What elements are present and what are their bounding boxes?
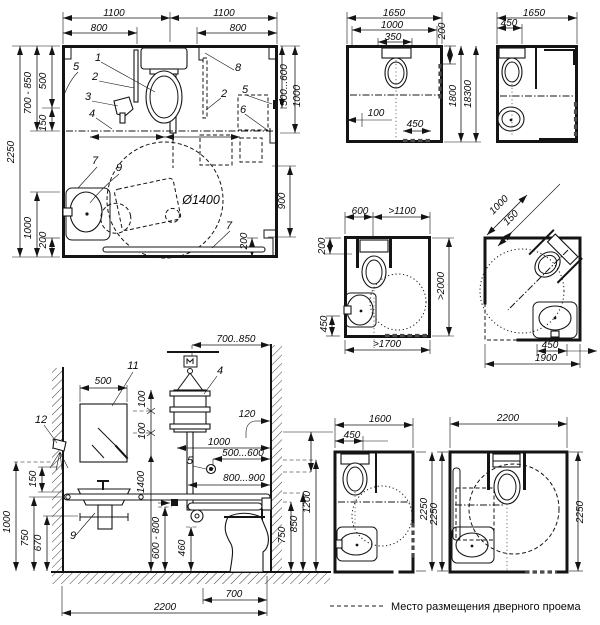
dim-label: 150 [38,114,49,131]
folding-seat-dashed [199,48,268,165]
drawing-sheet: 11001100800800700 - 85050015022501000200… [0,0,600,625]
dim-label: 1400 [136,470,147,493]
dim-label: 1000 [23,216,34,239]
corner-bench [545,50,574,64]
dim-label: 1000 [208,437,231,448]
washbasin-symbol [63,188,110,240]
callout-label: 5 [187,455,194,467]
callout-label: 5 [73,61,80,73]
dim-label: 850 [289,515,300,532]
toilet-plan-symbol [141,48,187,123]
dim-label: 500 [38,72,49,89]
legend-label: Место размещения дверного проема [391,601,581,613]
dim-label: 600 [352,206,369,217]
flush-button [273,100,278,109]
callout-label: 4 [89,108,95,120]
dim-label: 800 [91,23,108,34]
dim-label: 500 [95,376,112,387]
washbasin-symbol [498,107,524,131]
plan-1600: 16004502250 [335,414,432,572]
dim-label: 1800 [448,84,459,107]
labels-layer: 16501000350200180018300100450 [368,8,474,130]
callout-label: 7 [92,155,99,167]
callout-label: 2 [91,71,98,83]
accessible-wc-layouts-drawing: 11001100800800700 - 85050015022501000200… [0,0,600,625]
dim-label: >1700 [373,339,402,350]
callout-label: 4 [217,365,223,377]
callout-label: 6 [240,104,247,116]
dim-label: 500...600 [279,64,290,106]
elevation-view: 700..850500111210010041201000500...60058… [2,334,333,616]
dim-label: 450 [542,340,559,351]
dim-label: 1650 [383,8,406,19]
washbasin-elevation [78,481,130,529]
dim-label: 900 [277,192,288,209]
callout-label: 9 [116,162,122,174]
dim-label: 100 [368,108,385,119]
dim-label: 2250 [575,500,586,524]
dim-label: 700..850 [217,334,256,345]
door-wall-dashed [485,303,518,340]
plan-1650-a: 16501000350200180018300100450 [347,8,481,142]
callout-label: 1 [95,52,101,64]
cistern-symbol [170,356,210,510]
labels-layer: 11001100800800700 - 85050015022501000200… [6,8,303,250]
dim-label: >1100 [388,206,416,217]
dim-label: 1100 [103,8,125,19]
dim-label: 18300 [463,80,474,108]
dim-label: 450 [344,430,361,441]
dim-label: 200 [317,237,328,255]
dim-label: 700 - 850 [23,71,34,114]
callout-label: 3 [85,91,92,103]
plan-corner-wc: 10001504501900 [480,184,597,368]
urinal-symbol [114,97,133,123]
dim-label: 700 [226,589,243,600]
plan-2200: 220022502250 [429,413,586,572]
callout-label: 11 [127,360,138,372]
dim-label: 670 [33,534,44,551]
toilet-plan-symbol [341,454,369,495]
plan-1650-b: 1650450 [497,8,577,142]
toilet-plan-symbol [382,48,411,88]
mirror-symbol [80,404,127,462]
dim-label: 450 [319,315,330,332]
dim-label: 1650 [523,8,546,19]
callout-label: 5 [242,84,249,96]
dim-label: 450 [501,18,518,29]
dim-label: 800...900 [223,473,265,484]
toilet-plan-symbol [499,48,525,86]
legend: Место размещения дверного проема [330,601,581,613]
dim-label: Ø1400 [181,193,220,207]
dim-label: 450 [407,119,424,130]
vertical-grab-bar [134,50,138,102]
toilet-plan-symbol [356,238,392,288]
dim-label: 100 [137,422,148,439]
labels-layer: 1650450 [501,8,546,29]
dim-label: >2000 [436,272,447,301]
dim-label: 100 [137,390,148,407]
dim-label: 200 [38,231,49,249]
dim-label: 500...600 [222,448,264,459]
dim-label: 750 [277,526,288,543]
dim-label: 2200 [496,413,520,424]
dim-label: 1000 [2,510,13,533]
flush-button-symbol [207,465,216,474]
dim-label: 150 [501,208,521,228]
toilet-elevation [225,513,268,572]
dim-label: 150 [28,470,39,487]
dim-label: 1000 [381,20,404,31]
callout-label: 9 [70,530,76,542]
dim-label: 1900 [535,353,558,364]
dim-label: 200 [437,22,448,40]
dim-label: 350 [385,32,402,43]
washbasin-symbol [533,302,577,338]
dim-label: 120 [239,409,256,420]
dim-label: 800 [230,23,247,34]
dim-label: 600 - 800 [151,516,162,559]
dim-label: 1600 [369,414,392,425]
plan-min-wc: 600>1100200>2000450>1700 [317,206,454,354]
switch-symbol [171,499,178,506]
callout-label: 12 [35,414,47,426]
dim-label: 200 [239,232,250,250]
callout-label: 2 [220,88,227,100]
washbasin-symbol [336,527,377,561]
dim-label: 2250 [429,502,440,526]
callout-label: 8 [235,62,242,74]
callout-label: 7 [226,220,233,232]
dim-label: 2200 [153,602,177,613]
dim-label: 750 [20,529,31,546]
washbasin-symbol [344,293,376,327]
wall-fitting [64,47,71,59]
wall-fitting [269,47,276,59]
horizontal-grab-bar [64,494,270,500]
dim-label: 460 [177,539,188,556]
dim-label: 1000 [292,84,303,107]
dim-label: 1200 [302,490,313,513]
toilet-plan-symbol [487,452,526,504]
dim-label: 1100 [213,8,235,19]
plan-corner-unit: 11001100800800700 - 85050015022501000200… [6,8,303,258]
dim-label: 2250 [6,140,17,164]
